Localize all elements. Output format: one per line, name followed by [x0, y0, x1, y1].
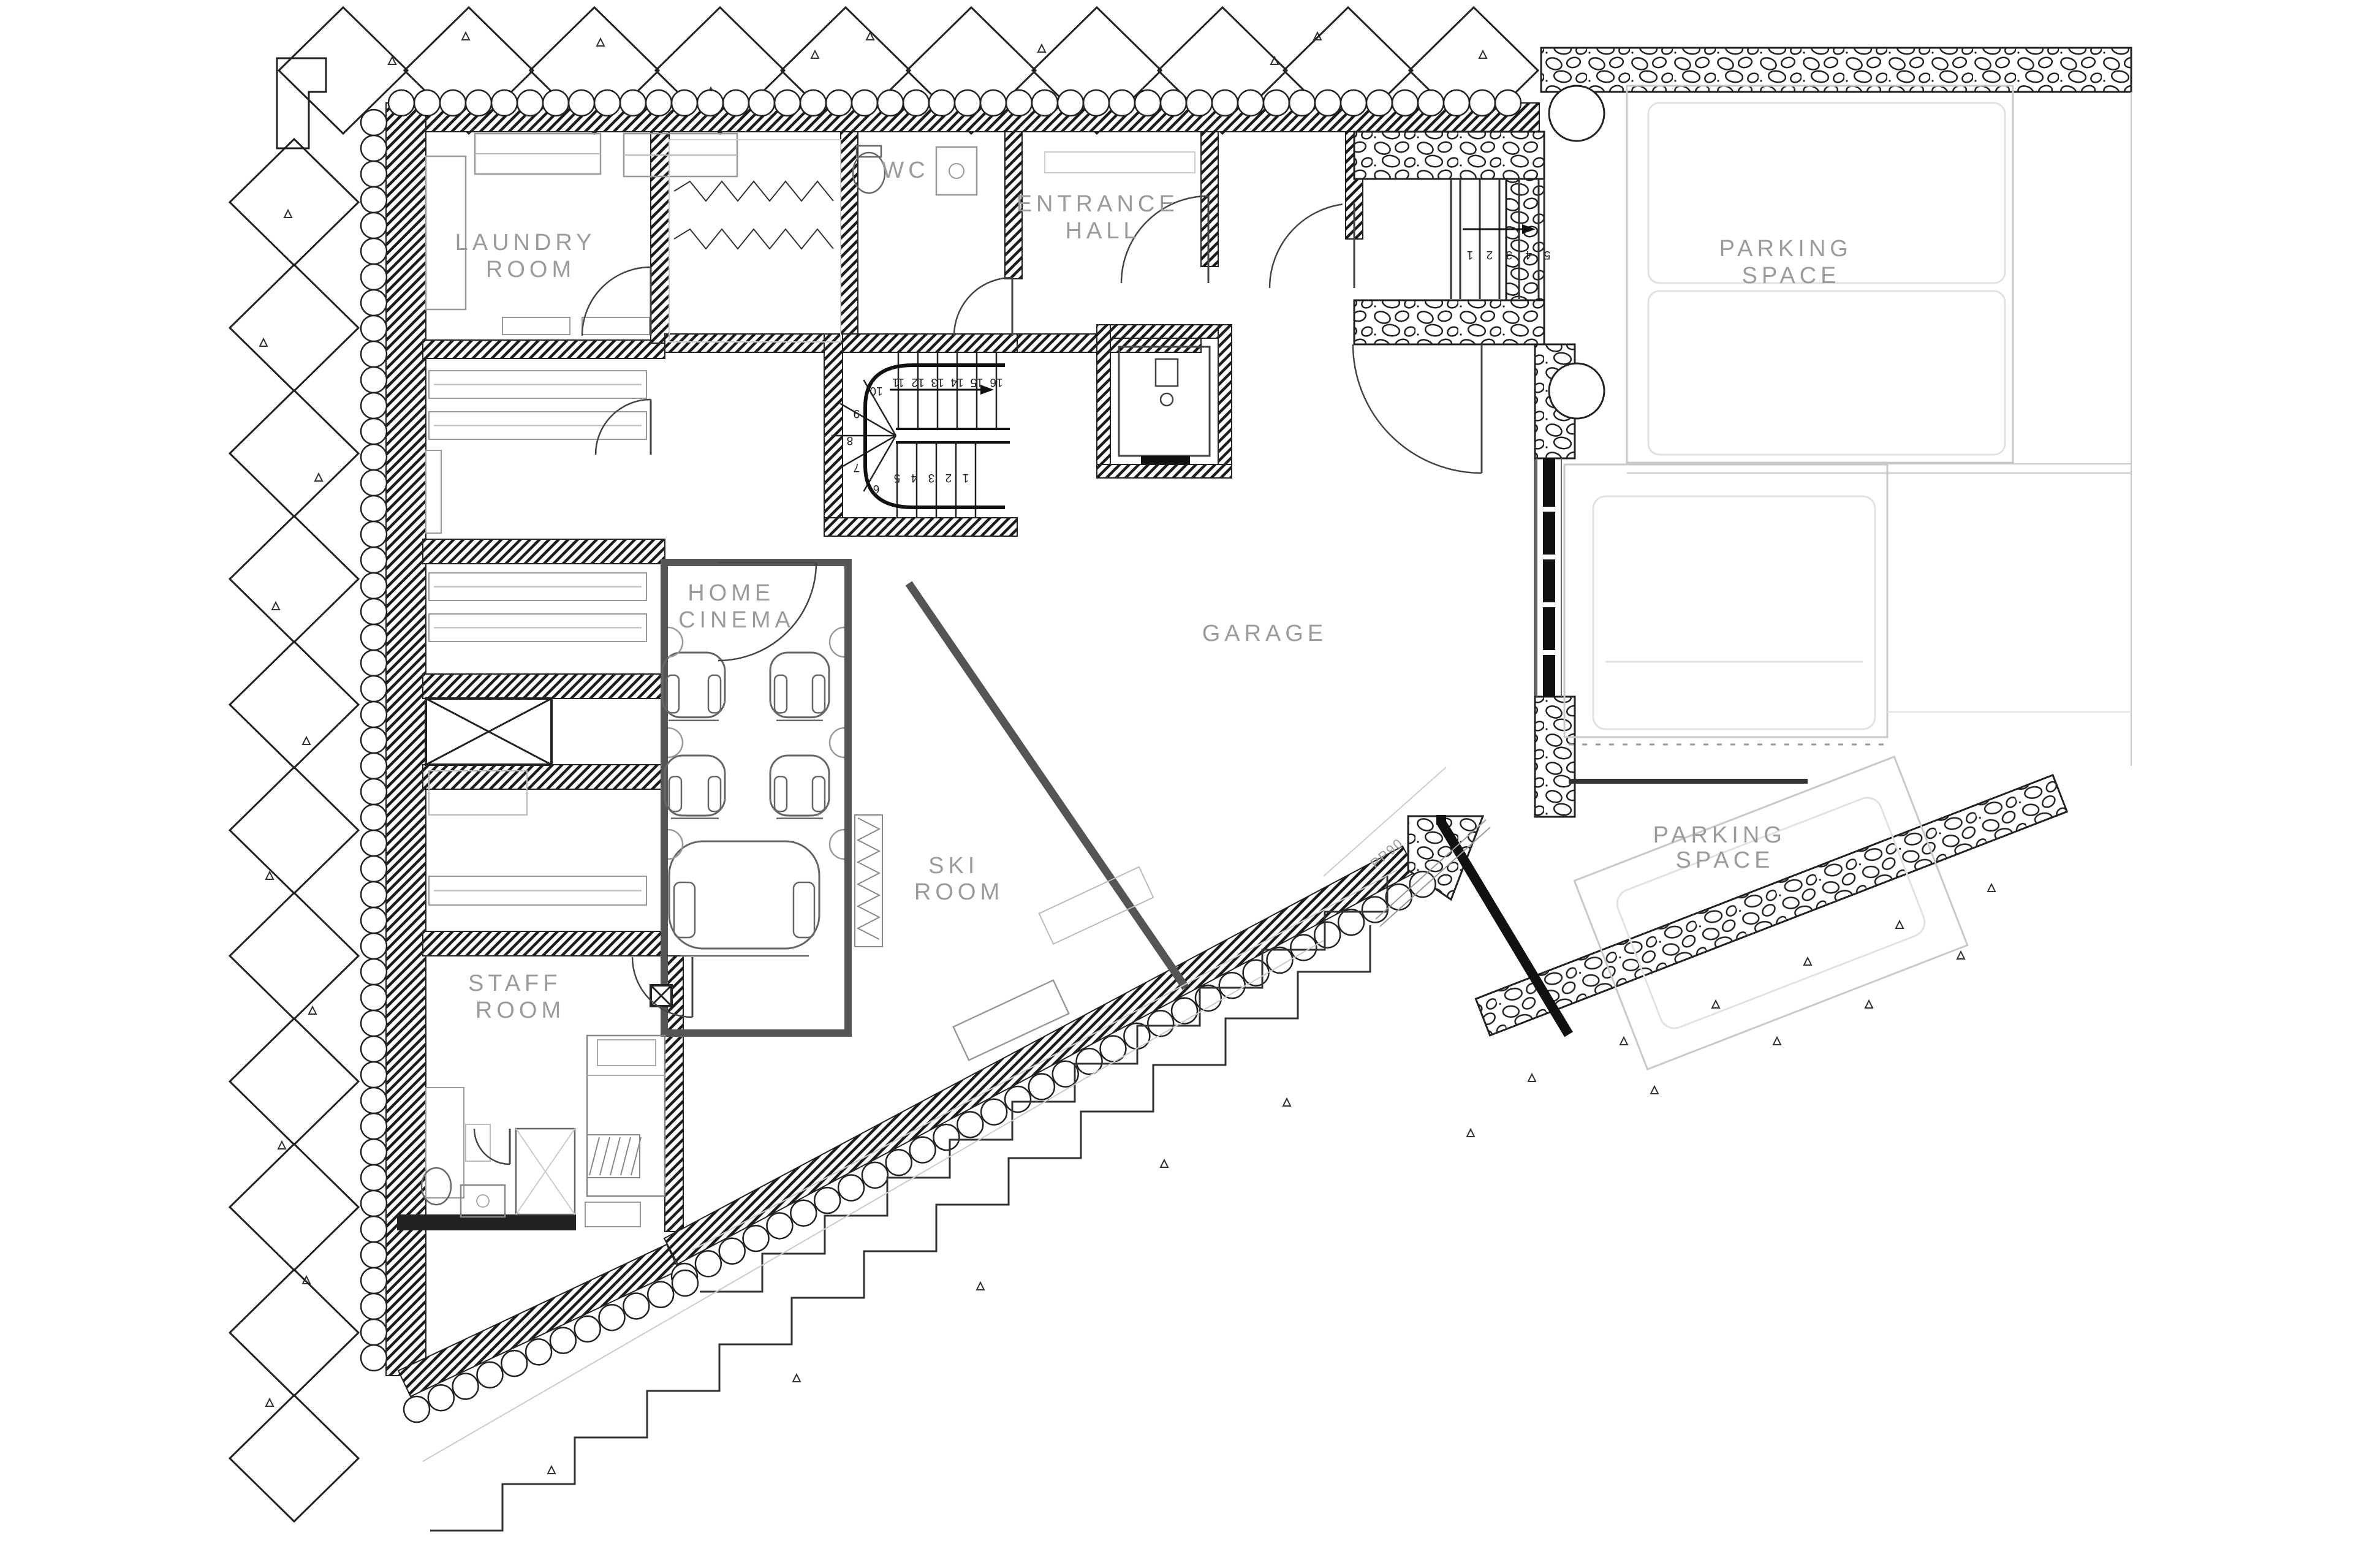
garage-label: GARAGE — [1202, 621, 1328, 646]
wc-label: WC — [882, 157, 929, 183]
svg-text:3: 3 — [928, 471, 935, 484]
floor-plan: 12345678910111213141516 12345 LAUNDRY RO… — [0, 0, 2353, 1568]
svg-text:13: 13 — [931, 376, 944, 388]
svg-text:2: 2 — [945, 471, 952, 484]
svg-text:14: 14 — [950, 376, 964, 388]
svg-text:12: 12 — [911, 376, 924, 388]
svg-text:11: 11 — [892, 376, 904, 388]
svg-text:10: 10 — [870, 384, 882, 397]
svg-text:15: 15 — [970, 376, 983, 388]
svg-text:9: 9 — [854, 407, 860, 420]
svg-text:1: 1 — [1467, 248, 1474, 261]
svg-text:16: 16 — [990, 376, 1002, 388]
svg-text:8: 8 — [847, 434, 854, 447]
svg-text:5: 5 — [894, 471, 901, 484]
svg-text:4: 4 — [1525, 248, 1532, 261]
svg-text:5: 5 — [1544, 248, 1551, 261]
svg-text:7: 7 — [854, 461, 860, 474]
svg-text:3: 3 — [1506, 248, 1513, 261]
paper-background — [0, 0, 2353, 1568]
svg-text:6: 6 — [873, 482, 880, 495]
svg-text:2: 2 — [1487, 248, 1493, 261]
svg-text:4: 4 — [911, 471, 917, 484]
svg-text:1: 1 — [963, 471, 969, 484]
